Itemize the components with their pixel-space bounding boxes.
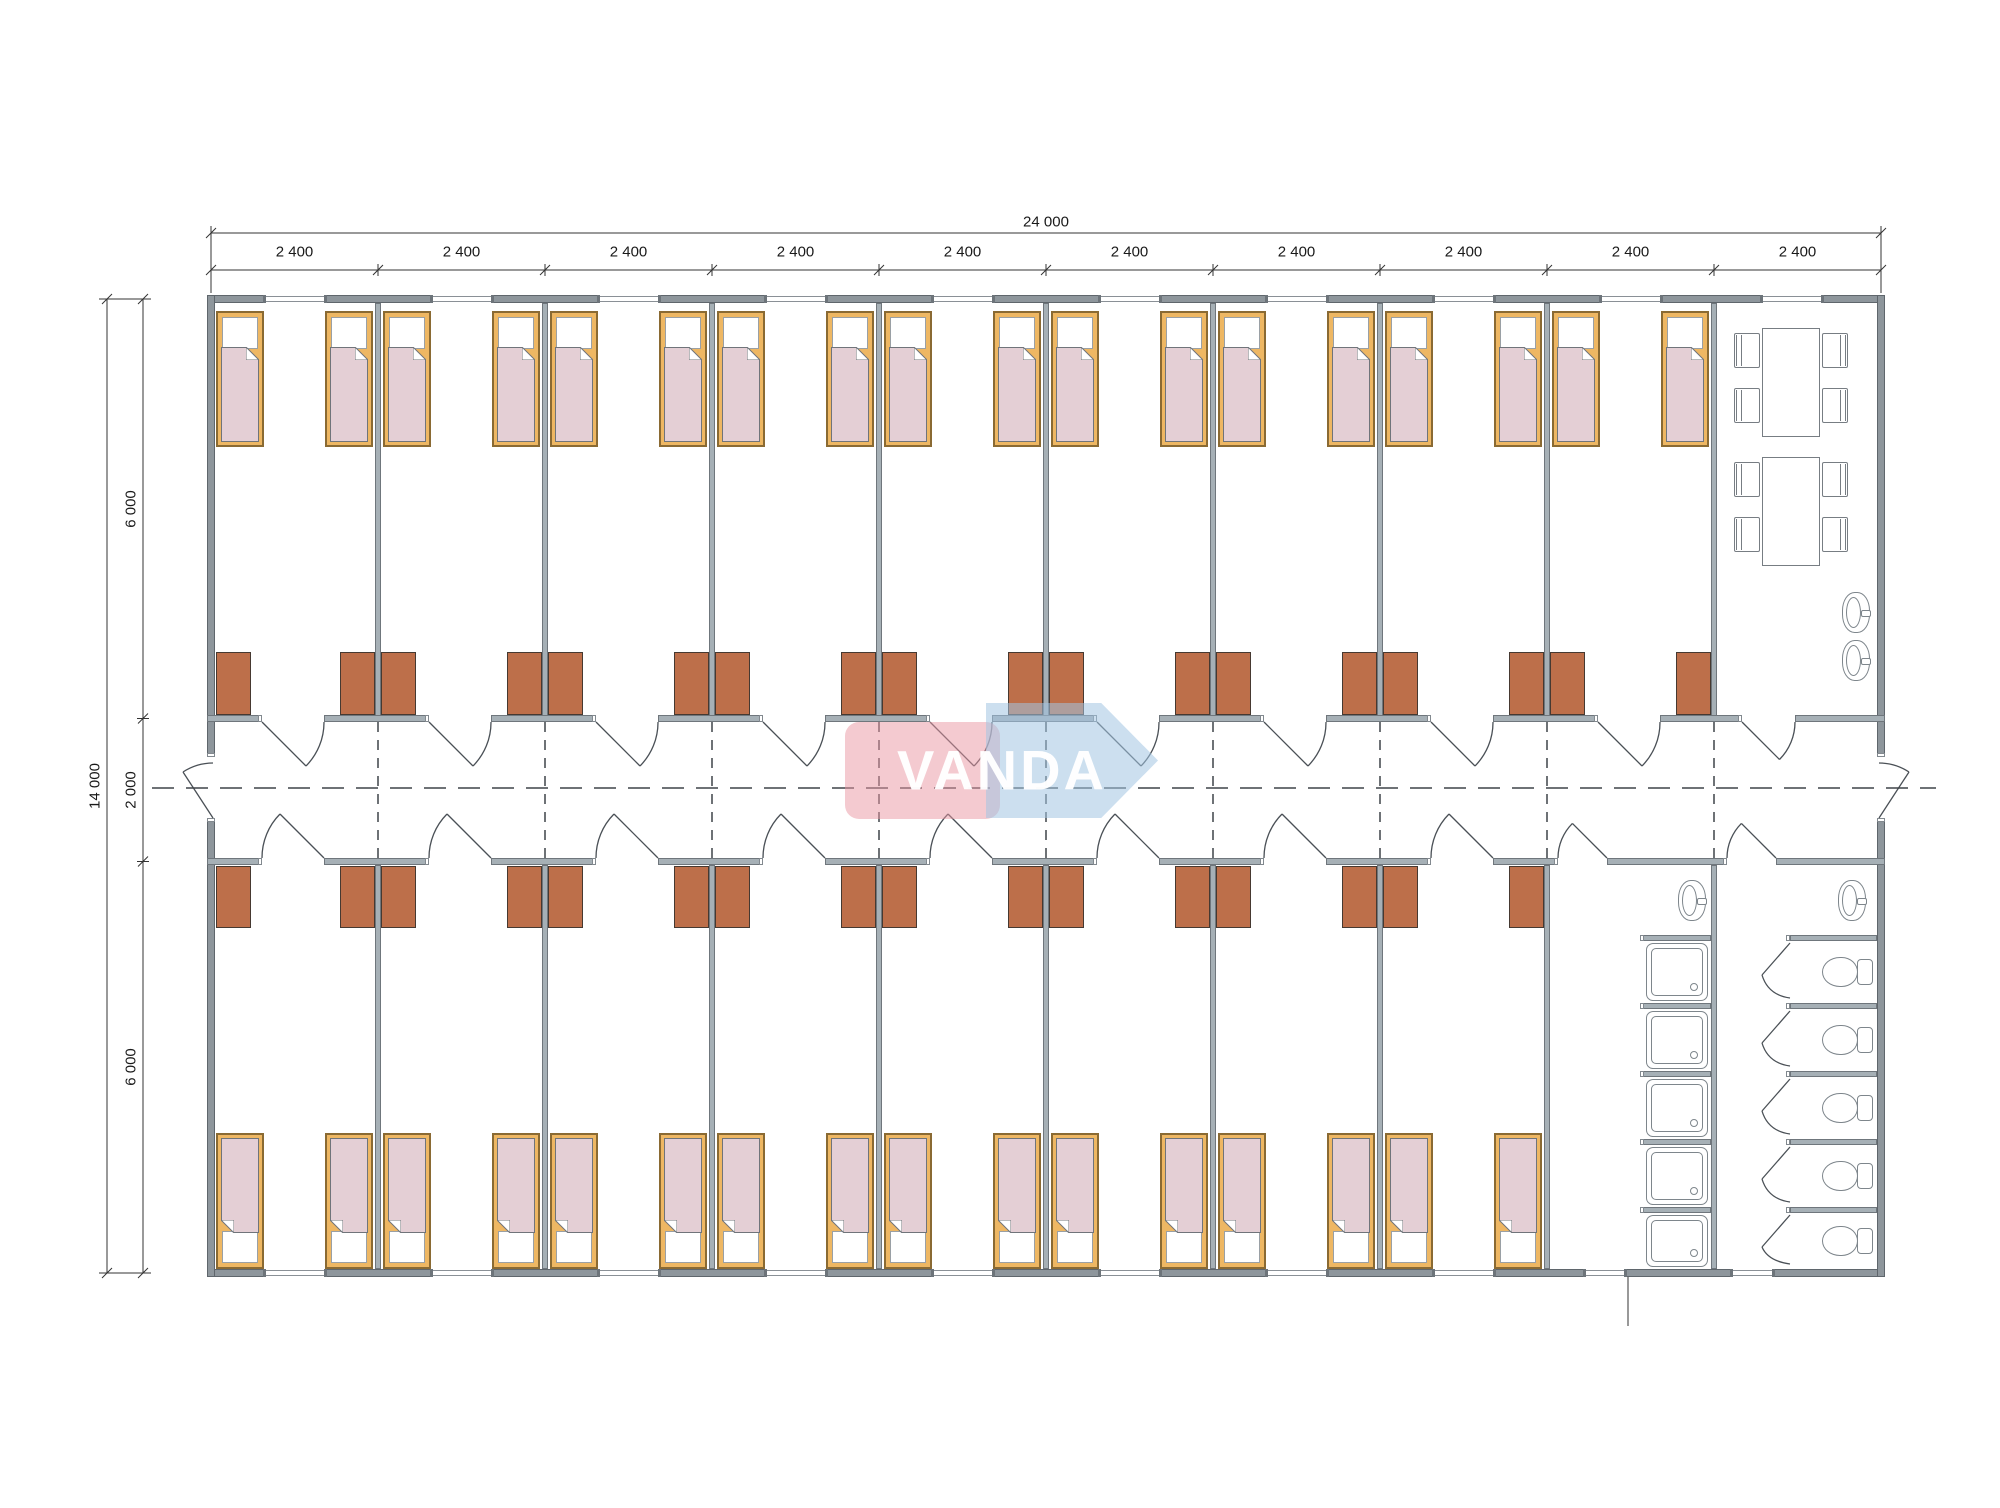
dim-label-height-segment: 6 000 — [123, 490, 140, 528]
dim-label-module-width: 2 400 — [1779, 244, 1817, 261]
dim-label-module-width: 2 400 — [777, 244, 815, 261]
floor-plan-canvas: VANDA 24 000 14 000 2 4002 4002 4002 400… — [0, 0, 2000, 1508]
dim-label-overall-width: 24 000 — [1023, 214, 1069, 231]
dim-label-module-width: 2 400 — [276, 244, 314, 261]
dim-label-module-width: 2 400 — [944, 244, 982, 261]
dim-label-module-width: 2 400 — [610, 244, 648, 261]
dim-label-module-width: 2 400 — [443, 244, 481, 261]
dimension-labels: 24 000 14 000 2 4002 4002 4002 4002 4002… — [0, 0, 2000, 1508]
dim-label-module-width: 2 400 — [1278, 244, 1316, 261]
dim-label-module-width: 2 400 — [1111, 244, 1149, 261]
dim-label-overall-height: 14 000 — [87, 763, 104, 809]
dim-label-module-width: 2 400 — [1612, 244, 1650, 261]
dim-label-module-width: 2 400 — [1445, 244, 1483, 261]
dim-label-height-segment: 2 000 — [123, 771, 140, 809]
dim-label-height-segment: 6 000 — [123, 1048, 140, 1086]
